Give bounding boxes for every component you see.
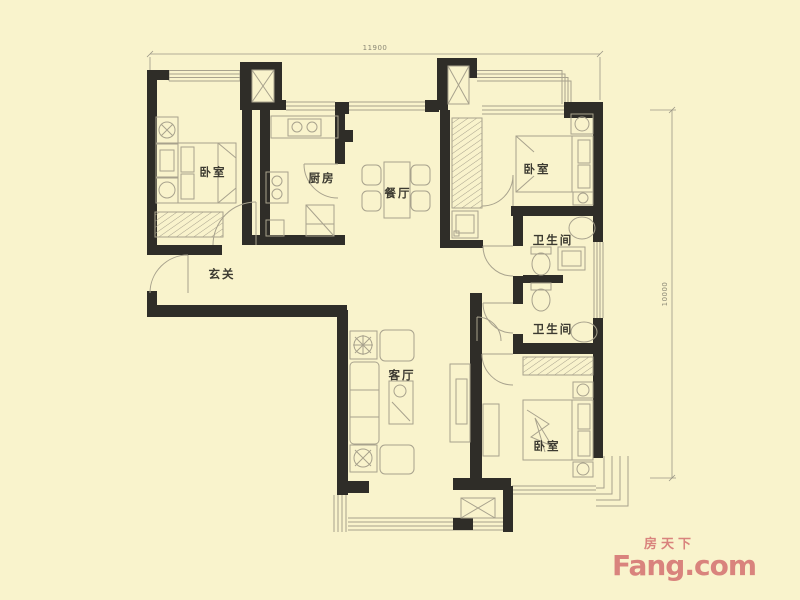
bathroom-upper-door	[483, 246, 513, 276]
dimension-right: 10000	[650, 107, 676, 481]
dimension-right-value: 10000	[661, 282, 669, 307]
room-label-entry-hall: 玄关	[209, 267, 236, 281]
armchair-symbol	[380, 445, 414, 474]
balcony-window-left	[334, 495, 346, 532]
fang-watermark: 房天下 Fang.com	[612, 533, 756, 580]
wardrobe-symbol	[523, 357, 593, 375]
bedroom-top-right-furniture	[516, 114, 593, 205]
tv-symbol	[456, 379, 467, 424]
bedroom3-window	[512, 486, 596, 494]
shaft-top-center	[448, 66, 469, 104]
floor-plan-screenshot: 11900 10000	[0, 0, 800, 600]
floor-plan-svg: 11900 10000	[0, 0, 800, 600]
window-top-center	[477, 71, 540, 82]
toilet-symbol	[532, 253, 550, 275]
room-label-bathroom-lower: 卫生间	[533, 322, 574, 336]
bedroom-bottom-right-door	[482, 354, 513, 385]
windows-layer	[169, 71, 628, 533]
room-label-living-room: 客厅	[388, 368, 416, 382]
wardrobe-symbol	[452, 118, 482, 208]
bathroom-window	[594, 242, 603, 318]
entry-door	[150, 255, 188, 293]
bay-window-top-right	[540, 71, 571, 105]
bedroom-top-right-door	[482, 175, 513, 206]
kitchen-window	[286, 102, 335, 110]
chair-symbol	[411, 191, 430, 211]
bay-window-top-left	[169, 71, 240, 82]
shaft-top-left	[252, 70, 274, 102]
wardrobe-symbol	[155, 212, 223, 237]
room-label-dining-room: 餐厅	[384, 186, 412, 200]
corridor-storage	[452, 118, 482, 238]
headboard-cabinet-symbol	[156, 144, 178, 177]
toilet-symbol	[532, 289, 550, 311]
balcony-window-bottom	[348, 518, 512, 530]
walls-layer	[147, 58, 603, 532]
room-label-bedroom-top-right: 卧室	[524, 162, 551, 176]
sink-symbol	[288, 119, 321, 136]
living-room-furniture	[350, 330, 470, 474]
room-label-bedroom-bottom-right: 卧室	[534, 439, 561, 453]
dimension-top: 11900	[147, 44, 603, 100]
dimension-top-value: 11900	[363, 44, 388, 52]
fang-brand-text: Fang.com	[612, 551, 756, 580]
bedroom2-window	[482, 106, 564, 114]
chair-symbol	[411, 165, 430, 185]
shaft-balcony	[461, 498, 495, 518]
bedroom-bottom-right-furniture	[483, 357, 593, 477]
chair-symbol	[362, 191, 381, 211]
dining-window	[349, 102, 425, 110]
room-label-bedroom-left: 卧室	[200, 165, 227, 179]
bay-window-bottom-right	[596, 456, 628, 506]
sofa-symbol	[350, 362, 379, 444]
desk-symbol	[483, 404, 499, 456]
room-label-kitchen: 厨房	[309, 171, 336, 185]
room-label-bathroom-upper: 卫生间	[533, 233, 574, 247]
armchair-symbol	[380, 330, 414, 361]
chair-symbol	[362, 165, 381, 185]
